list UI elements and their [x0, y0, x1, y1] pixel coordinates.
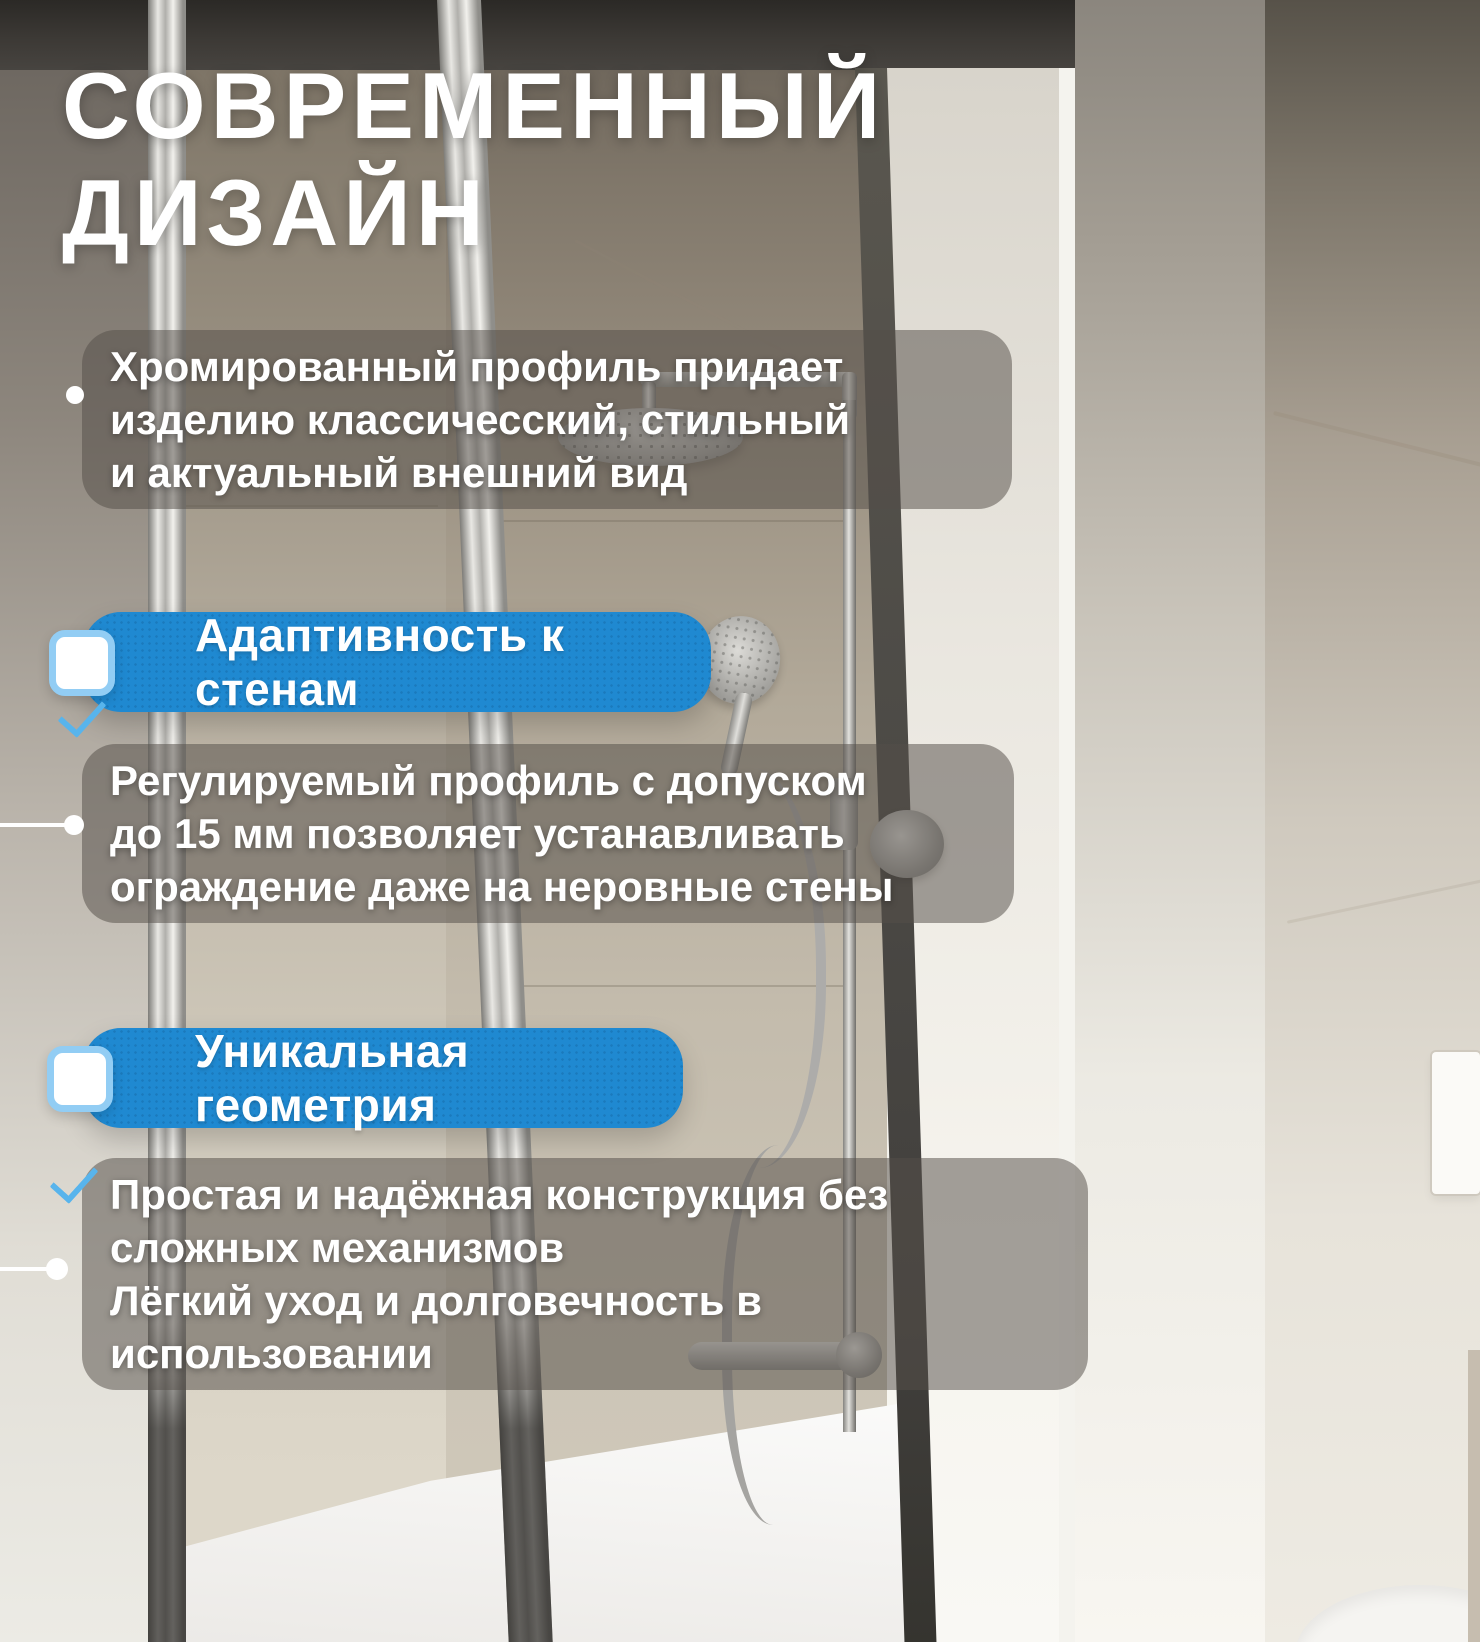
connector-line: [0, 1267, 52, 1271]
wall-edge-strip: [1468, 1350, 1480, 1642]
feature-note-geometry: Простая и надёжная конструкция без сложн…: [82, 1158, 1088, 1390]
badge-adaptability-label: Адаптивность к стенам: [195, 608, 711, 716]
flush-plate: [1432, 1052, 1480, 1194]
badge-geometry: Уникальная геометрия: [83, 1028, 683, 1128]
badge-geometry-label: Уникальная геометрия: [195, 1024, 683, 1132]
check-square-icon: [47, 1046, 113, 1112]
feature-note-adaptability: Регулируемый профиль с допуском до 15 мм…: [82, 744, 1014, 923]
bullet-dot-icon: [46, 1258, 68, 1280]
product-banner: СОВРЕМЕННЫЙ ДИЗАЙН Хромированный профиль…: [0, 0, 1480, 1642]
right-marble-wall: [1265, 0, 1480, 1642]
badge-adaptability: Адаптивность к стенам: [83, 612, 711, 712]
feature-note-design: Хромированный профиль придает изделию кл…: [82, 330, 1012, 509]
panel-divider: [1059, 68, 1075, 1642]
tile-grout-line: [482, 520, 855, 522]
check-square-icon: [49, 630, 115, 696]
bullet-dot-icon: [64, 815, 84, 835]
connector-line: [0, 823, 68, 827]
page-title: СОВРЕМЕННЫЙ ДИЗАЙН: [62, 52, 1162, 266]
bullet-dot-icon: [66, 386, 84, 404]
